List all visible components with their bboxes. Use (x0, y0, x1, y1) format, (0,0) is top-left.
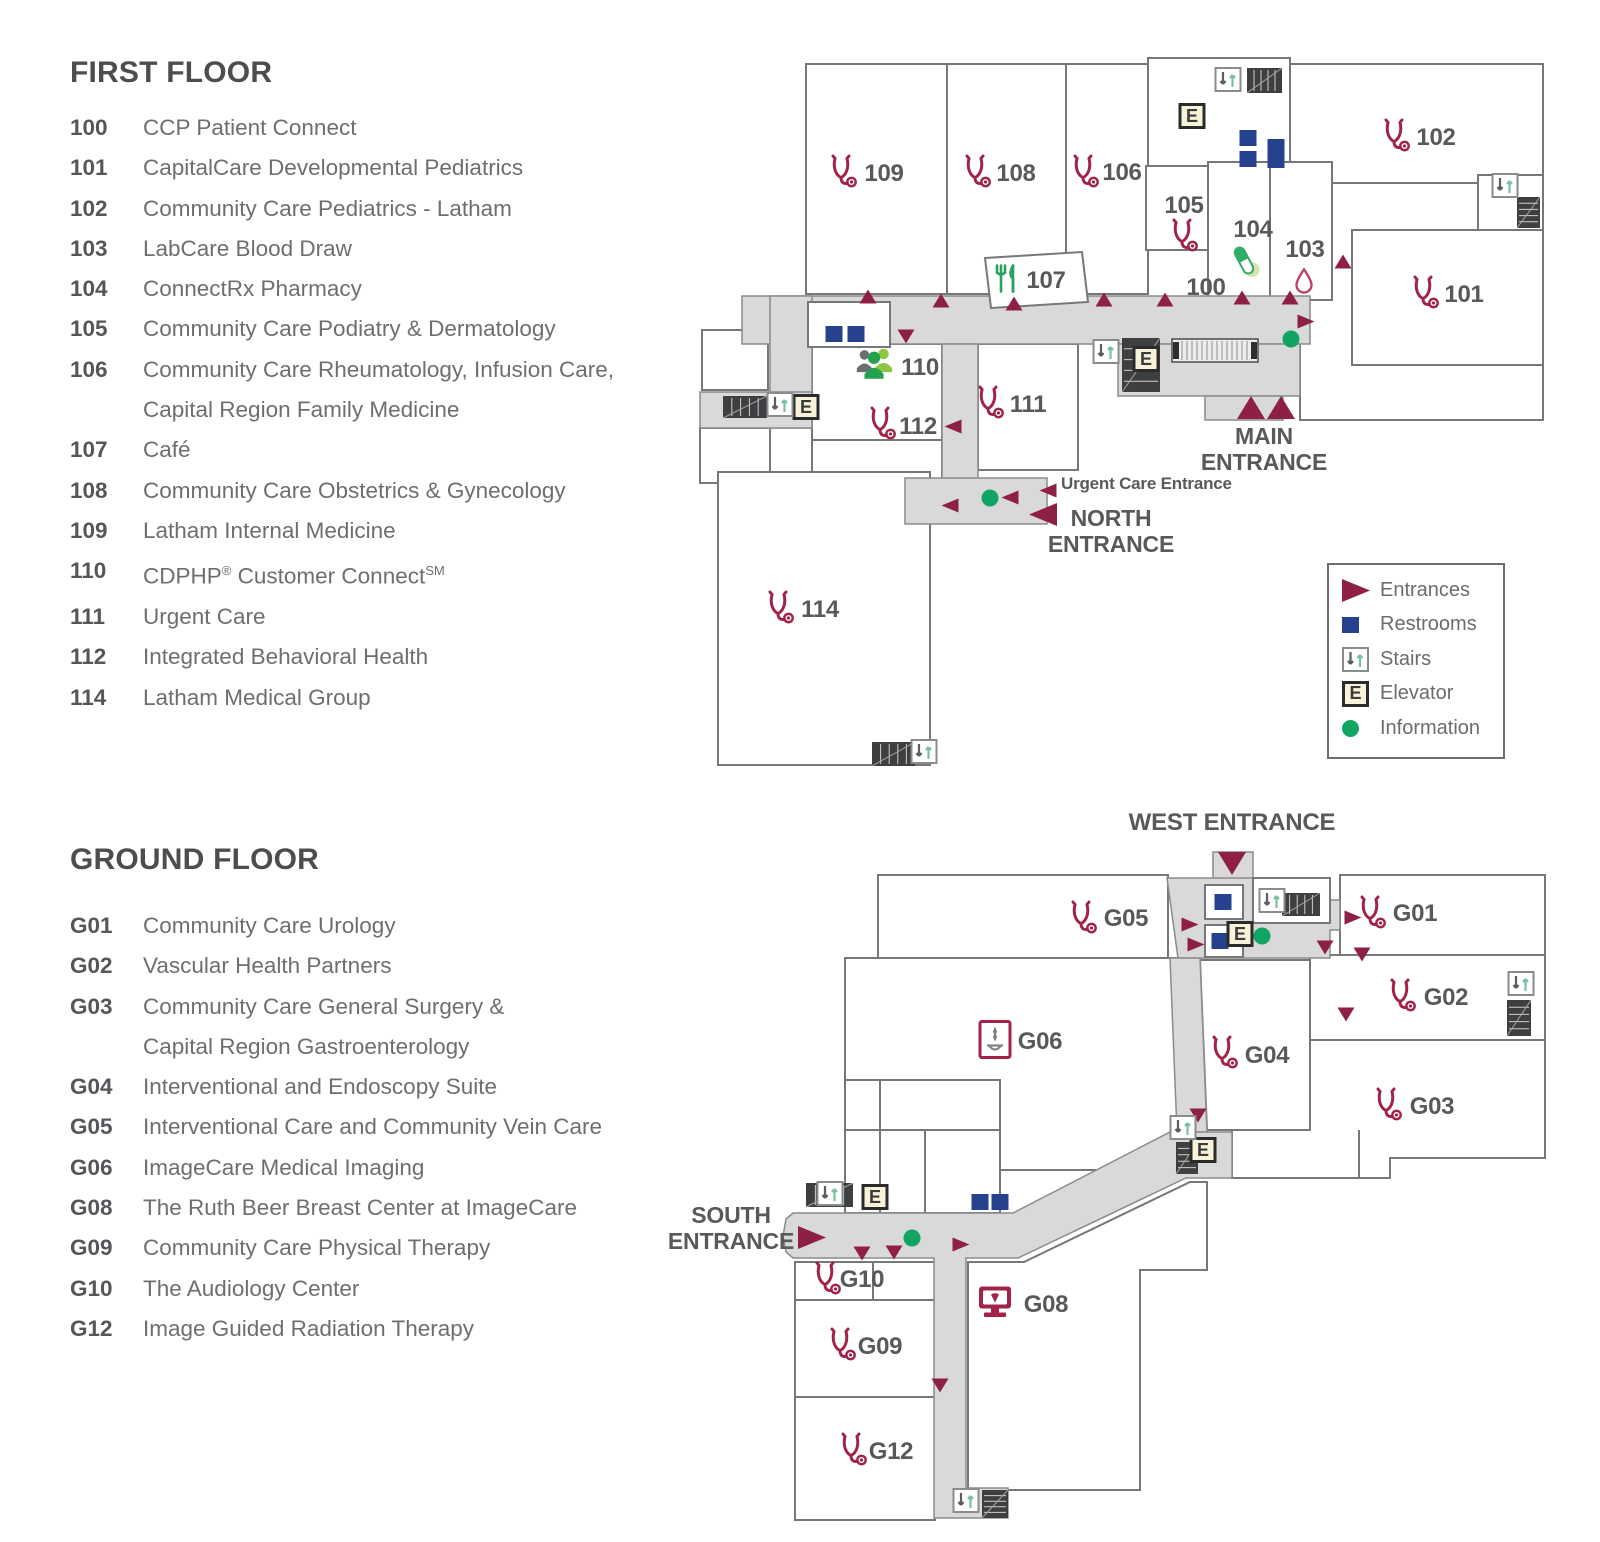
entrance-arrow-icon (860, 290, 877, 304)
entrance-marker (942, 499, 959, 518)
entrance-marker (953, 1238, 970, 1257)
elevator-marker: E (1133, 346, 1160, 372)
entrance-marker (1237, 396, 1265, 424)
entrance-arrow-icon (1317, 941, 1334, 955)
entrance-arrow-icon (953, 1238, 970, 1252)
room-marker-G09 (827, 1328, 857, 1367)
entrance-marker (886, 1246, 903, 1265)
entrance-marker (1040, 484, 1057, 503)
elevator-marker: E (862, 1184, 889, 1210)
map-icons-layer: 109 108 106 102 101 105 (0, 0, 1600, 1542)
room-label-G03: G03 (1410, 1093, 1454, 1121)
room-label-G04: G04 (1245, 1042, 1289, 1070)
entrance-arrow-icon (933, 294, 950, 308)
stethoscope-icon (828, 155, 858, 189)
stethoscope-icon (867, 407, 897, 441)
stairs-icon (1508, 971, 1535, 996)
info-marker (982, 490, 999, 507)
entrance-arrow-icon (1237, 396, 1265, 419)
entrance-marker (1345, 911, 1362, 930)
elevator-icon: E (1179, 103, 1206, 129)
restroom-marker (1215, 894, 1232, 910)
entrance-arrow-icon (1345, 911, 1362, 925)
entrance-arrow-icon (898, 330, 915, 344)
stethoscope-icon (1387, 979, 1417, 1013)
restroom-icon (826, 326, 843, 342)
room-label-109: 109 (864, 160, 903, 188)
entrance-arrow-icon (1096, 293, 1113, 307)
map-label-west-entrance: WEST ENTRANCE (1129, 810, 1336, 837)
room-marker-110 (854, 347, 894, 385)
room-label-105: 105 (1164, 192, 1203, 220)
room-label-G06: G06 (1018, 1028, 1062, 1056)
entrance-arrow-icon (1335, 255, 1352, 269)
room-label-103: 103 (1285, 236, 1324, 264)
entrance-marker (1338, 1008, 1355, 1027)
restroom-marker (1240, 130, 1257, 146)
entrance-arrow-icon (945, 420, 962, 434)
stairs-marker (1508, 971, 1535, 1001)
information-icon (982, 490, 999, 507)
stairs-marker (817, 1181, 844, 1211)
map-label-main-entrance: MAINENTRANCE (1201, 424, 1327, 476)
stairs-icon (953, 1488, 980, 1513)
info-marker (1254, 928, 1271, 945)
entrance-arrow-icon (1267, 396, 1295, 419)
room-marker-G10 (812, 1262, 842, 1301)
elevator-marker: E (793, 394, 820, 420)
room-marker-G01 (1357, 896, 1387, 935)
room-marker-G08 (974, 1285, 1016, 1326)
entrance-marker (798, 1226, 826, 1254)
stairs-marker (953, 1488, 980, 1518)
room-marker-102 (1381, 119, 1411, 158)
elevator-marker: E (1179, 103, 1206, 129)
room-label-G01: G01 (1393, 900, 1437, 928)
stairs-icon (767, 392, 794, 417)
restroom-icon (1215, 894, 1232, 910)
room-label-112: 112 (899, 413, 937, 441)
restroom-icon (848, 326, 865, 342)
restroom-icon (972, 1194, 989, 1210)
entrance-marker (1218, 852, 1246, 880)
restroom-marker (826, 326, 843, 342)
entrance-marker (932, 1379, 949, 1398)
elevator-icon: E (1227, 921, 1254, 947)
elevator-icon: E (862, 1184, 889, 1210)
restroom-icon (992, 1194, 1009, 1210)
entrance-arrow-icon (1354, 948, 1371, 962)
elevator-marker: E (1227, 921, 1254, 947)
entrance-marker (1282, 291, 1299, 310)
room-marker-104 (1230, 244, 1262, 285)
stairs-marker (1170, 1115, 1197, 1145)
restroom-marker (1268, 152, 1285, 168)
entrance-arrow-icon (1188, 938, 1205, 952)
entrance-marker (1317, 941, 1334, 960)
room-marker-108 (962, 155, 992, 194)
stairs-marker (1215, 67, 1242, 97)
medical-imaging-icon (978, 1020, 1012, 1060)
room-label-114: 114 (801, 596, 839, 624)
entrance-marker (860, 290, 877, 309)
entrance-marker (1157, 293, 1174, 312)
room-marker-G06 (978, 1020, 1012, 1065)
restroom-marker (1240, 151, 1257, 167)
room-marker-114 (765, 591, 795, 630)
room-label-G05: G05 (1104, 905, 1148, 933)
room-label-G08: G08 (1024, 1291, 1068, 1319)
room-marker-G04 (1209, 1036, 1239, 1075)
cafe-utensils-icon (994, 264, 1020, 294)
entrance-marker (1006, 297, 1023, 316)
stethoscope-icon (962, 155, 992, 189)
stethoscope-icon (1373, 1088, 1403, 1122)
entrance-marker (945, 420, 962, 439)
room-marker-107 (994, 264, 1020, 299)
entrance-arrow-icon (1002, 491, 1019, 505)
map-label-urgent-care-entrance: Urgent Care Entrance (1061, 474, 1232, 493)
information-icon (904, 1230, 921, 1247)
customer-connect-people-icon (854, 347, 894, 380)
map-label-south-entrance: SOUTHENTRANCE (668, 1203, 794, 1255)
entrance-arrow-icon (798, 1226, 826, 1249)
entrance-arrow-icon (1282, 291, 1299, 305)
entrance-marker (1188, 938, 1205, 957)
stethoscope-icon (827, 1328, 857, 1362)
entrance-arrow-icon (1040, 484, 1057, 498)
entrance-arrow-icon (1298, 315, 1315, 329)
stairs-icon (817, 1181, 844, 1206)
stairs-marker (1093, 339, 1120, 369)
entrance-marker (898, 330, 915, 349)
room-label-101: 101 (1444, 281, 1483, 309)
entrance-arrow-icon (942, 499, 959, 513)
stairs-icon (1170, 1115, 1197, 1140)
stairs-marker (911, 739, 938, 769)
elevator-icon: E (793, 394, 820, 420)
stairs-icon (1492, 173, 1519, 198)
room-label-G10: G10 (840, 1266, 884, 1294)
stethoscope-icon (1068, 901, 1098, 935)
stethoscope-icon (1209, 1036, 1239, 1070)
room-label-G12: G12 (869, 1438, 913, 1466)
stethoscope-icon (765, 591, 795, 625)
information-icon (1283, 331, 1300, 348)
restroom-marker (848, 326, 865, 342)
map-label-north-entrance: NORTHENTRANCE (1048, 506, 1174, 558)
restroom-icon (1268, 152, 1285, 168)
entrance-marker (1182, 918, 1199, 937)
room-label-111: 111 (1010, 391, 1047, 419)
entrance-marker (854, 1247, 871, 1266)
room-label-102: 102 (1416, 124, 1455, 152)
entrance-arrow-icon (932, 1379, 949, 1393)
stairs-icon (1259, 888, 1286, 913)
room-label-110: 110 (901, 354, 939, 382)
elevator-icon: E (1133, 346, 1160, 372)
stethoscope-icon (838, 1433, 868, 1467)
room-label-G02: G02 (1424, 984, 1468, 1012)
room-label-104: 104 (1233, 216, 1272, 244)
stairs-marker (1492, 173, 1519, 203)
room-marker-G05 (1068, 901, 1098, 940)
room-marker-105 (1169, 219, 1199, 258)
floor-plan-page: FIRST FLOOR 100CCP Patient Connect101Cap… (0, 0, 1600, 1542)
restroom-icon (1240, 151, 1257, 167)
entrance-marker (1002, 491, 1019, 510)
room-marker-112 (867, 407, 897, 446)
breast-imaging-icon (974, 1285, 1016, 1321)
stethoscope-icon (1357, 896, 1387, 930)
entrance-marker (933, 294, 950, 313)
entrance-arrow-icon (1006, 297, 1023, 311)
entrance-arrow-icon (854, 1247, 871, 1261)
entrance-arrow-icon (1182, 918, 1199, 932)
info-marker (904, 1230, 921, 1247)
room-marker-109 (828, 155, 858, 194)
entrance-marker (1234, 291, 1251, 310)
stethoscope-icon (1169, 219, 1199, 253)
room-marker-111 (975, 386, 1005, 425)
stethoscope-icon (1410, 276, 1440, 310)
restroom-marker (972, 1194, 989, 1210)
restroom-marker (992, 1194, 1009, 1210)
info-marker (1283, 331, 1300, 348)
stethoscope-icon (1070, 155, 1100, 189)
room-marker-G12 (838, 1433, 868, 1472)
entrance-arrow-icon (1218, 852, 1246, 875)
stairs-marker (1259, 888, 1286, 918)
entrance-marker (1354, 948, 1371, 967)
room-label-100: 100 (1186, 274, 1225, 302)
entrance-arrow-icon (1338, 1008, 1355, 1022)
room-marker-106 (1070, 155, 1100, 194)
entrance-arrow-icon (1157, 293, 1174, 307)
entrance-marker (1267, 396, 1295, 424)
stairs-icon (1093, 339, 1120, 364)
stethoscope-icon (975, 386, 1005, 420)
stairs-marker (767, 392, 794, 422)
stethoscope-icon (1381, 119, 1411, 153)
room-label-106: 106 (1102, 159, 1141, 187)
stairs-icon (1215, 67, 1242, 92)
room-label-108: 108 (996, 160, 1035, 188)
entrance-marker (1335, 255, 1352, 274)
room-label-107: 107 (1026, 267, 1065, 295)
entrance-marker (1298, 315, 1315, 334)
room-label-G09: G09 (858, 1333, 902, 1361)
entrance-arrow-icon (886, 1246, 903, 1260)
entrance-marker (1096, 293, 1113, 312)
restroom-icon (1240, 130, 1257, 146)
stairs-icon (911, 739, 938, 764)
room-marker-G02 (1387, 979, 1417, 1018)
information-icon (1254, 928, 1271, 945)
stethoscope-icon (812, 1262, 842, 1296)
pharmacy-pill-icon (1230, 244, 1262, 280)
entrance-arrow-icon (1234, 291, 1251, 305)
room-marker-101 (1410, 276, 1440, 315)
room-marker-G03 (1373, 1088, 1403, 1127)
